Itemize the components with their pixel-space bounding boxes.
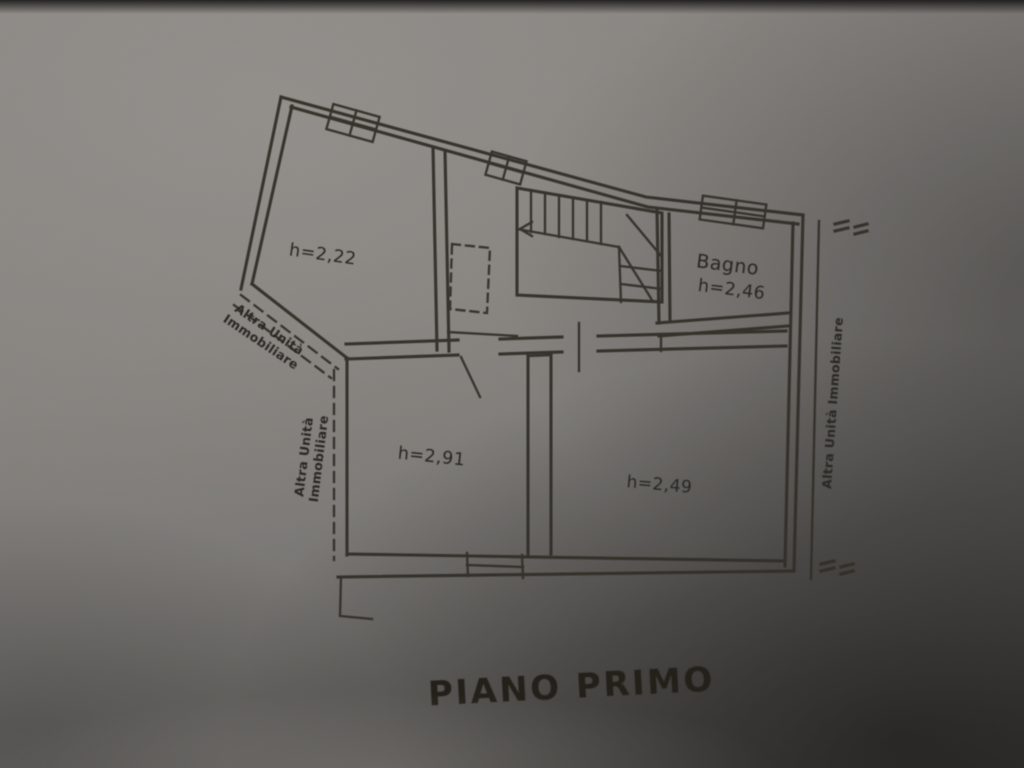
photo-grain-overlay bbox=[0, 0, 1024, 768]
floor-plan-drawing: h=2,22 Bagno h=2,46 h=2,91 h=2,49 Altra … bbox=[0, 0, 1024, 768]
photographed-floor-plan-page: h=2,22 Bagno h=2,46 h=2,91 h=2,49 Altra … bbox=[0, 0, 1024, 768]
